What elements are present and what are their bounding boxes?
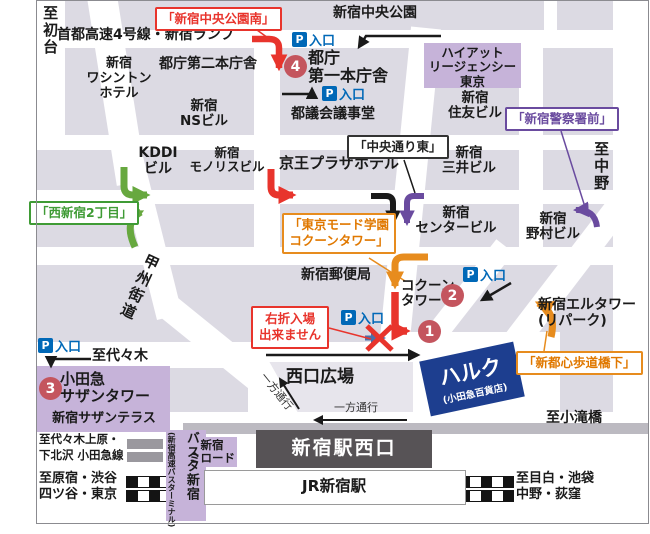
building-tocho2: 都庁第二本庁舎: [159, 57, 257, 73]
building-togikai: 都議会議事堂: [291, 107, 375, 123]
parking-entrance-eltower: P 入口: [463, 265, 506, 284]
building-kddi: KDDI ビル: [129, 146, 187, 178]
parking-icon: P: [38, 338, 53, 353]
direction-ogikubo: 中野・荻窪: [516, 488, 581, 503]
route-marker-3: 3: [39, 377, 62, 400]
oneway-horiz-label: 一方通行: [334, 402, 378, 415]
parking-entrance-top: P 入口: [292, 30, 335, 49]
callout-mode-gakuen: 「東京モード学園 コクーンタワー」: [282, 213, 396, 254]
callout-nishi-shinjuku-2: 「西新宿2丁目」: [29, 201, 139, 225]
plaza-label: 西口広場: [286, 368, 354, 387]
callout-hodokyo: 「新都心歩道橋下」: [516, 351, 643, 375]
building-milord: 新宿 ミロード: [187, 439, 237, 465]
building-park: 新宿中央公園: [300, 6, 450, 22]
callout-chuo-dori-east: 「中央通り東」: [347, 135, 449, 159]
building-center: 新宿 センタービル: [404, 206, 508, 237]
direction-odakyu-line: 至代々木上原・ 下北沢 小田急線: [39, 432, 124, 463]
building-eltower: 新宿エルタワー (リパーク): [538, 298, 636, 330]
callout-police-front: 「新宿警察署前」: [505, 107, 619, 131]
route-marker-4: 4: [284, 55, 307, 78]
shinjuku-access-map: ハルク (小田急百貨店): [0, 0, 650, 534]
road-vA: [254, 30, 280, 251]
direction-yoyogi: 至代々木: [92, 349, 148, 365]
parking-icon: P: [322, 86, 337, 101]
parking-icon: P: [463, 267, 478, 282]
parking-icon: P: [292, 32, 307, 47]
building-ns: 新宿 NSビル: [160, 99, 248, 130]
direction-harajuku: 至原宿・渋谷: [39, 472, 117, 487]
building-washington: 新宿 ワシントン ホテル: [75, 57, 163, 101]
basuta-sub-label: (新宿高速バスターミナル): [167, 432, 176, 527]
direction-hatsudai: 至初台: [41, 5, 58, 56]
building-southern: 小田急 サザンタワー: [60, 371, 150, 405]
direction-mejiro: 至目白・池袋: [516, 472, 594, 487]
parking-entrance-southern: P 入口: [38, 336, 81, 355]
callout-no-right-turn: 右折入場 出来ません: [251, 306, 329, 349]
direction-kotakibashi: 至小滝橋: [546, 411, 602, 427]
building-postoffice: 新宿郵便局: [301, 268, 371, 284]
direction-nakano: 至中野: [592, 141, 609, 192]
odakyu-track-1: [127, 439, 163, 449]
odakyu-track-2: [127, 452, 163, 462]
building-nomura: 新宿 野村ビル: [517, 212, 589, 243]
building-tocho1: 都庁 第一本庁舎: [308, 49, 388, 85]
route-marker-2: 2: [441, 284, 464, 307]
station-west-exit-label: 新宿駅西口: [256, 438, 432, 460]
parking-icon: P: [341, 310, 356, 325]
building-monolith: 新宿 モノリスビル: [187, 146, 267, 175]
route-marker-1: 1: [418, 320, 441, 343]
parking-entrance-mid: P 入口: [322, 84, 365, 103]
direction-yotsuya: 四ツ谷・東京: [39, 488, 117, 503]
road-gap-top: [544, 0, 557, 31]
jr-station-label: JR新宿駅: [204, 478, 464, 496]
building-hyatt: ハイアット リージェンシー 東京: [424, 46, 521, 89]
jr-track-left-1: [126, 476, 170, 488]
building-terrace: 新宿サザンテラス: [39, 412, 169, 427]
jr-track-left-2: [126, 490, 170, 502]
parking-entrance-main: P 入口: [341, 308, 384, 327]
callout-park-south: 「新宿中央公園南」: [155, 7, 282, 31]
